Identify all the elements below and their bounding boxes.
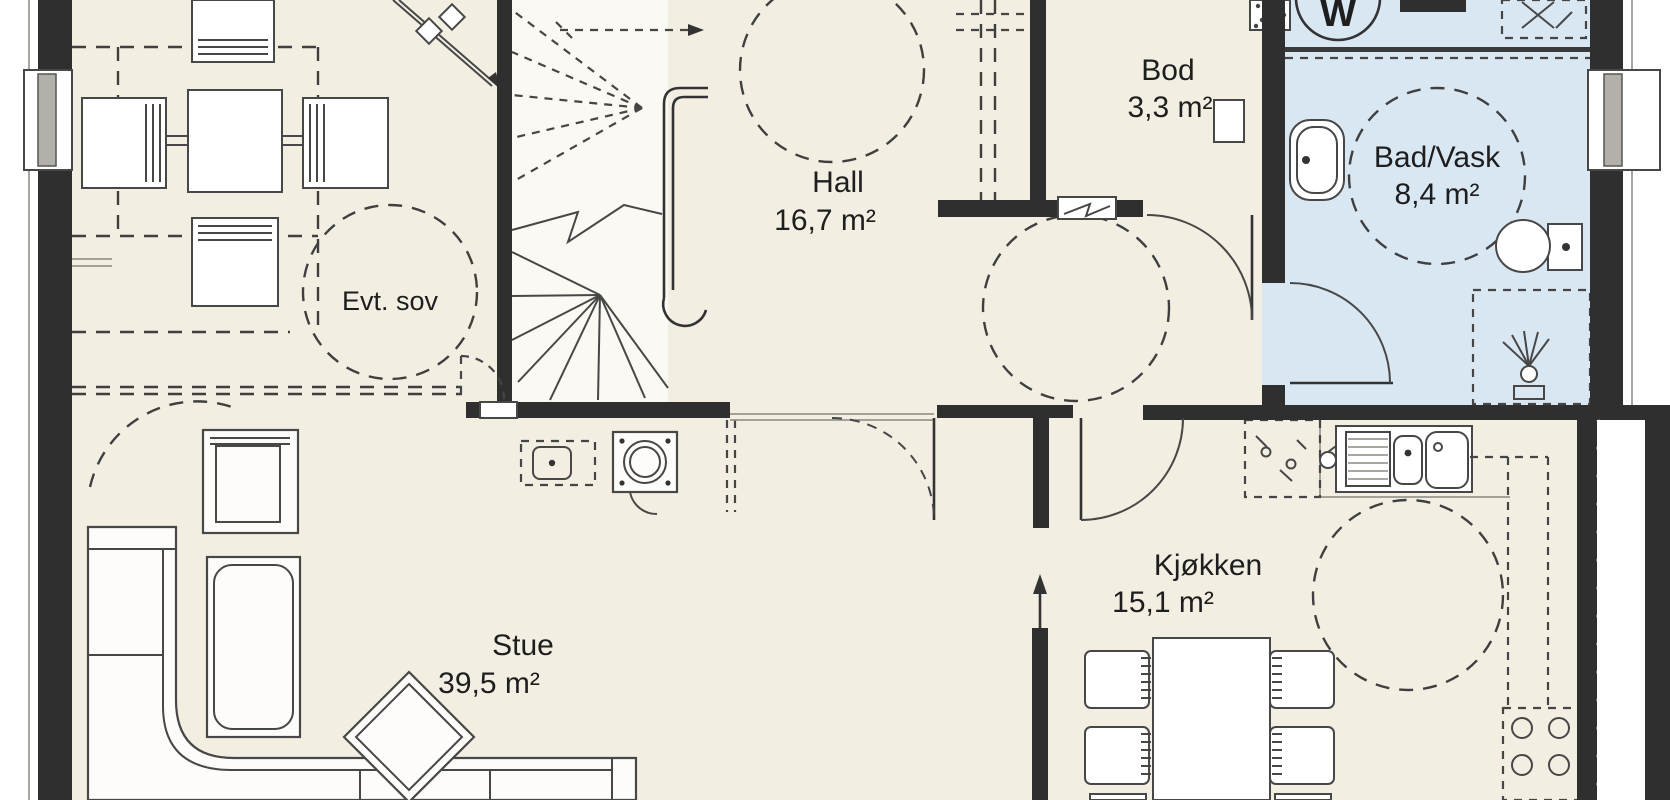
partition-line xyxy=(1285,47,1590,52)
chair-icon xyxy=(1270,727,1334,784)
toilet-icon xyxy=(1496,220,1582,272)
bath-west-wall xyxy=(1262,385,1285,407)
chair-icon xyxy=(1270,651,1334,708)
room-area-bad: 8,4 m² xyxy=(1394,178,1479,211)
chair-icon xyxy=(192,0,274,62)
exterior-wall-left xyxy=(38,0,72,72)
counter-icon xyxy=(1400,0,1466,12)
chair-icon xyxy=(192,218,278,306)
bath-west-wall xyxy=(1262,0,1285,283)
chaise-icon xyxy=(207,557,300,737)
room-area-bod: 3,3 m² xyxy=(1127,91,1212,124)
room-label-kjokken: Kjøkken xyxy=(1154,549,1262,582)
adjacent-structure xyxy=(1645,420,1670,800)
south-band-wall xyxy=(1143,405,1670,420)
kitchen-east-wall xyxy=(1577,420,1597,800)
window-icon xyxy=(1588,70,1660,170)
stair-wall xyxy=(497,0,512,402)
room-area-stue: 39,5 m² xyxy=(438,667,540,700)
room-label-bad: Bad/Vask xyxy=(1374,141,1501,174)
kitchen-sink-icon xyxy=(1320,426,1472,492)
dining-table-icon xyxy=(188,90,282,192)
room-label-hall: Hall xyxy=(812,166,864,199)
exterior-wall-left xyxy=(38,168,72,800)
room-label-bod: Bod xyxy=(1141,54,1194,87)
exterior-wall-right xyxy=(1590,168,1623,405)
kitchen-table-icon xyxy=(1153,638,1270,800)
window-icon xyxy=(24,70,72,170)
cabinet-icon xyxy=(1214,100,1244,142)
room-label-evt-sov: Evt. sov xyxy=(342,286,439,316)
kitchen-stub-wall xyxy=(1033,418,1049,528)
outside-right-top xyxy=(1623,0,1670,405)
exterior-wall-right xyxy=(1590,0,1623,72)
bath-sink-icon xyxy=(1290,120,1344,200)
chair-icon xyxy=(1085,727,1151,784)
room-area-kjokken: 15,1 m² xyxy=(1112,586,1214,619)
stair-floor xyxy=(512,0,668,402)
chair-icon xyxy=(1090,794,1146,800)
chair-icon xyxy=(1085,651,1151,708)
chair-icon xyxy=(303,98,388,188)
window-icon xyxy=(480,402,517,418)
floor-plan: W xyxy=(0,0,1670,800)
washer-label: W xyxy=(1320,0,1356,35)
chair-icon xyxy=(1275,794,1331,800)
hall-south-wall xyxy=(937,405,1073,418)
chair-icon xyxy=(82,98,166,188)
stair-bottom-wall xyxy=(517,402,730,418)
bod-west-wall xyxy=(1030,0,1046,205)
room-area-hall: 16,7 m² xyxy=(774,204,876,237)
room-label-stue: Stue xyxy=(492,629,554,662)
stue-kitchen-wall xyxy=(1032,628,1048,800)
vent-icon xyxy=(1058,197,1116,219)
stair-bottom-wall xyxy=(466,402,480,418)
